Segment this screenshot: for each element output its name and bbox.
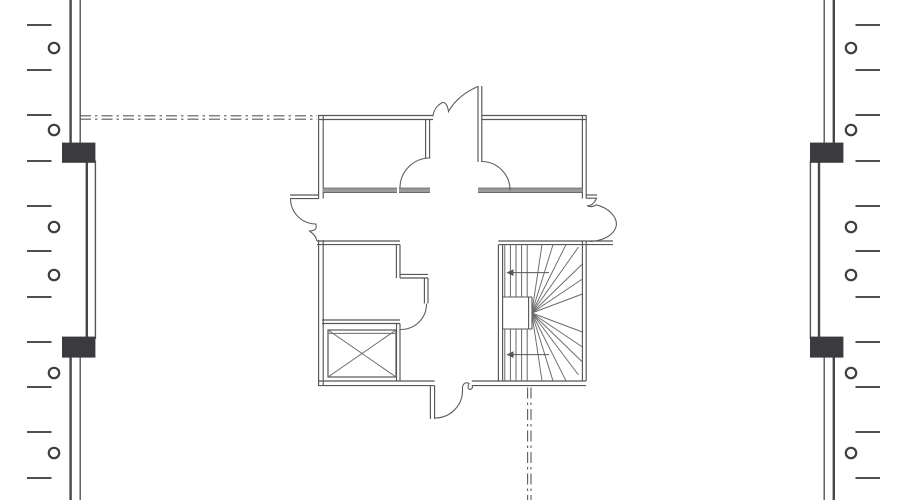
right-curtain-wall-connector-block [810,143,843,163]
stair-winder-line [532,279,583,313]
right-curtain-wall-fastener-circle [846,222,856,232]
floor-plan-page [0,0,900,500]
door-swing-upper-left-room [400,158,430,188]
stair-winder-line [532,247,579,313]
right-curtain-wall-fastener-circle [846,125,856,135]
left-curtain-wall-fastener-circle [49,43,59,53]
door-swing-lower-left-room [401,304,427,330]
left-curtain-wall-fastener-circle [49,125,59,135]
left-curtain-wall-fastener-circle [49,448,59,458]
door-swing-corridor-left [291,199,317,225]
left-curtain-wall-fastener-circle [49,368,59,378]
left-curtain-wall-connector-block [62,337,95,358]
corridor-left-door-leaf-tip [310,224,317,241]
left-curtain-wall-fastener-circle [49,270,59,280]
vestibule-door-leaf [433,87,478,117]
right-curtain-wall-fastener-circle [846,368,856,378]
left-curtain-wall-fastener-circle [49,222,59,232]
exit-door-leaf-tip [462,383,472,390]
stair-winder-line [532,313,583,347]
right-curtain-wall-fastener-circle [846,43,856,53]
door-swing-bottom-exit [435,391,463,419]
right-curtain-wall-fastener-circle [846,270,856,280]
door-swing-upper-right-room [482,162,511,191]
right-curtain-wall-fastener-circle [846,448,856,458]
left-curtain-wall-connector-block [62,143,95,163]
right-curtain-wall-connector-block [810,337,843,358]
corridor-right-door-leaf [587,198,616,241]
stair-winder-line [532,313,579,375]
floor-plan-drawing [0,0,900,500]
